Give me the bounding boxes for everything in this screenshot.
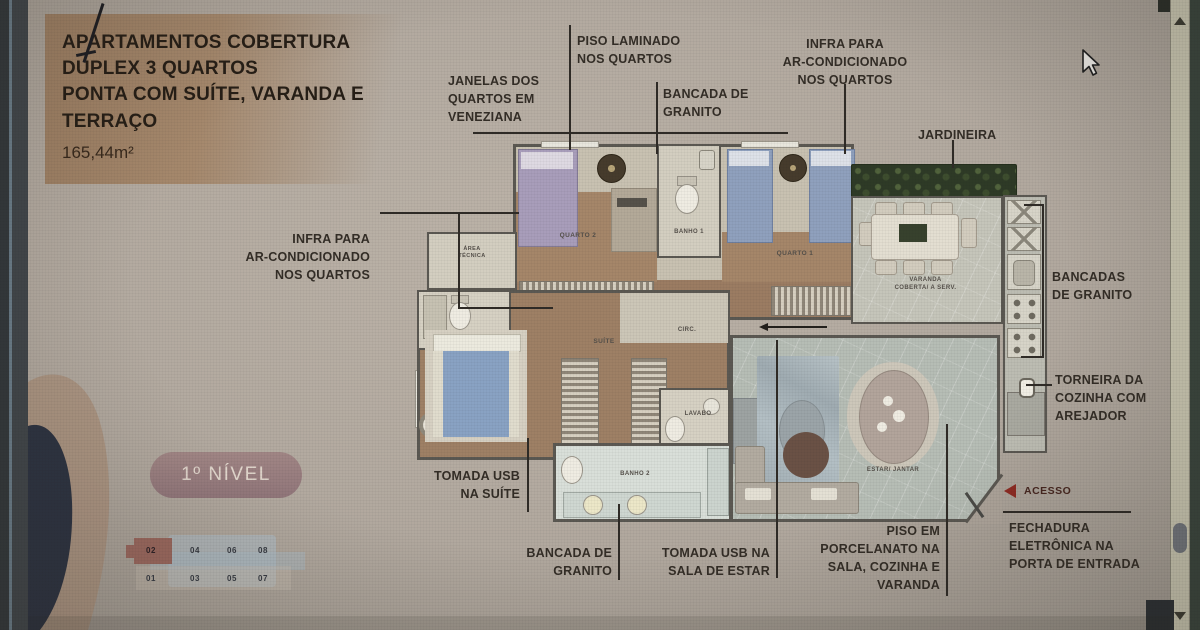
label-torneira: TORNEIRA DA COZINHA COM AREJADOR — [1055, 371, 1146, 425]
screen-bezel-right — [1190, 0, 1200, 630]
toilet-icon — [675, 184, 699, 214]
plate — [893, 410, 905, 422]
scrollbar-thumb[interactable] — [1173, 523, 1187, 553]
suite-bed-throw — [509, 351, 519, 437]
divider-line-entrada — [1003, 511, 1131, 513]
scroll-up-arrow[interactable] — [1174, 17, 1186, 25]
banho2-shower — [707, 448, 729, 516]
window — [741, 141, 799, 148]
unit-03[interactable]: 03 — [190, 574, 200, 583]
ceiling-fan-icon — [779, 154, 807, 182]
label-piso-porcelanato: PISO EM PORCELANATO NA SALA, COZINHA E V… — [814, 522, 940, 595]
leader-infra-left — [458, 307, 553, 309]
sliding-door-arrowhead — [759, 323, 768, 331]
jardineira-hedge — [851, 164, 1017, 198]
screen-bezel-left — [0, 0, 28, 630]
toilet-icon — [665, 416, 685, 442]
apartment-area: 165,44m² — [45, 135, 405, 163]
tv-icon — [617, 198, 647, 207]
quarto2-pillow — [521, 152, 573, 169]
fridge-icon — [1007, 392, 1045, 436]
label-bancada-bottom: BANCADA DE GRANITO — [524, 544, 612, 580]
title-block: APARTAMENTOS COBERTURA DUPLEX 3 QUARTOS … — [45, 14, 405, 184]
label-piso-laminado: PISO LAMINADO NOS QUARTOS — [577, 32, 680, 68]
leader-bancada-bottom — [618, 504, 620, 580]
level-badge[interactable]: 1º NÍVEL — [150, 452, 302, 498]
unit-06[interactable]: 06 — [227, 546, 237, 555]
decorative-wave — [28, 368, 128, 630]
dining-chair — [961, 218, 977, 248]
sofa-cushion — [811, 488, 837, 500]
ceiling-fan-icon — [597, 154, 626, 183]
circ-floor — [620, 293, 728, 343]
access-left-arrow-icon — [1004, 484, 1016, 498]
label-bancadas-right: BANCADAS DE GRANITO — [1052, 268, 1132, 304]
kitchen-faucet — [1019, 378, 1035, 398]
kitchen-sink-basin — [1013, 260, 1035, 286]
unit-block-02-tab — [126, 545, 136, 558]
label-infra-top: INFRA PARA AR-CONDICIONADO NOS QUARTOS — [778, 35, 912, 89]
screen-edge-bottom — [28, 616, 1170, 630]
suite-bed-pillows — [433, 334, 521, 352]
leader-jardineira — [952, 140, 954, 168]
plate — [883, 396, 893, 406]
pouf-brown — [783, 432, 829, 478]
room-label-area-tecnica: ÁREA TÉCNICA — [427, 246, 517, 261]
unit-01[interactable]: 01 — [146, 574, 156, 583]
leader-bancadas-right — [1021, 356, 1042, 358]
room-label-estar: ESTAR/ JANTAR — [845, 466, 941, 474]
cooktop-icon — [1007, 294, 1041, 324]
leader-piso-porcelanato — [946, 424, 948, 596]
room-label-banho1: BANHO 1 — [659, 228, 719, 236]
plate — [877, 422, 887, 432]
page-title: APARTAMENTOS COBERTURA DUPLEX 3 QUARTOS … — [45, 14, 405, 135]
table-centerpiece — [899, 224, 927, 242]
label-tomada-sala: TOMADA USB NA SALA DE ESTAR — [660, 544, 770, 580]
unit-07[interactable]: 07 — [258, 574, 268, 583]
cooktop-icon — [1007, 328, 1041, 358]
room-label-varanda: VARANDA COBERTA/ A SERV. — [863, 276, 988, 292]
room-label-banho2: BANHO 2 — [595, 470, 675, 478]
banho2-sink — [627, 495, 647, 515]
scroll-down-arrow[interactable] — [1174, 612, 1186, 620]
leader-tomada-suite — [527, 438, 529, 512]
quarto1-pillow-left — [729, 151, 769, 166]
dining-chair — [903, 260, 925, 275]
leader-janelas — [473, 132, 788, 134]
label-janelas: JANELAS DOS QUARTOS EM VENEZIANA — [448, 72, 539, 126]
area-tecnica-room — [427, 232, 517, 290]
mouse-cursor-icon — [1080, 48, 1102, 78]
sofa-cushion — [745, 488, 771, 500]
label-bancada-top: BANCADA DE GRANITO — [663, 85, 749, 121]
screen-photo: APARTAMENTOS COBERTURA DUPLEX 3 QUARTOS … — [0, 0, 1200, 630]
suite-bed — [433, 351, 519, 437]
unit-02[interactable]: 02 — [146, 546, 156, 555]
quarto1-wardrobe — [771, 286, 853, 316]
suite-bed-throw — [433, 351, 443, 437]
label-acesso: ACESSO — [1024, 484, 1071, 499]
banho1-sink — [699, 150, 715, 170]
suite-wardrobe — [561, 358, 599, 446]
dining-chair — [931, 260, 953, 275]
toilet-icon — [561, 456, 583, 484]
leader-torneira — [1026, 384, 1052, 386]
unit-08[interactable]: 08 — [258, 546, 268, 555]
label-jardineira: JARDINEIRA — [918, 126, 996, 144]
label-tomada-suite: TOMADA USB NA SUÍTE — [428, 467, 520, 503]
room-label-suite: SUÍTE — [579, 338, 629, 347]
key-plan: 02 04 06 08 01 03 05 07 — [120, 530, 310, 600]
sofa-chaise — [735, 446, 765, 486]
unit-04[interactable]: 04 — [190, 546, 200, 555]
room-label-quarto1: QUARTO 1 — [755, 250, 835, 259]
granite-counter-icon — [1007, 227, 1041, 251]
room-label-circ: CIRC. — [665, 326, 709, 334]
unit-05[interactable]: 05 — [227, 574, 237, 583]
label-fechadura: FECHADURA ELETRÔNICA NA PORTA DE ENTRADA — [1009, 519, 1140, 573]
label-infra-left: INFRA PARA AR-CONDICIONADO NOS QUARTOS — [238, 230, 370, 284]
leader-bancadas-right — [1042, 204, 1044, 358]
sliding-door-arrow — [767, 326, 827, 328]
leader-infra-left — [458, 212, 460, 309]
banho2-sink — [583, 495, 603, 515]
leader-bancada-top — [656, 82, 658, 154]
dining-chair — [875, 260, 897, 275]
room-label-lavabo: LAVABO — [667, 410, 729, 418]
leader-infra-left — [380, 212, 519, 214]
leader-infra-top — [844, 84, 846, 154]
leader-tomada-sala — [776, 340, 778, 578]
leader-bancadas-right — [1024, 204, 1042, 206]
room-label-quarto2: QUARTO 2 — [533, 232, 623, 241]
